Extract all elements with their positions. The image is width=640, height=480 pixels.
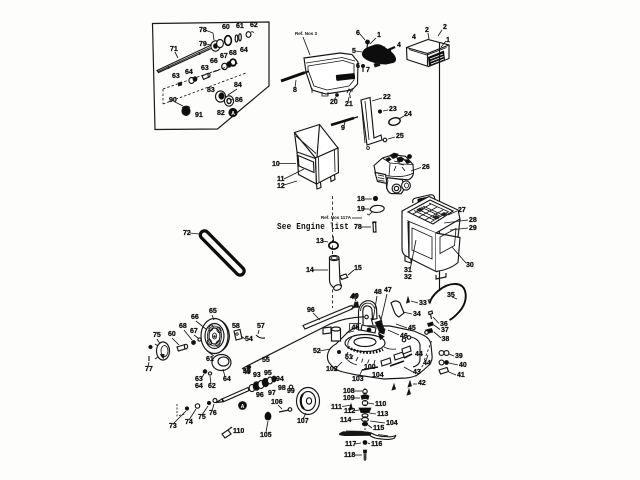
- svg-text:49: 49: [243, 369, 251, 376]
- svg-text:62: 62: [250, 22, 258, 29]
- svg-text:61: 61: [236, 23, 244, 30]
- svg-text:110: 110: [233, 428, 244, 435]
- svg-text:54: 54: [245, 336, 253, 343]
- svg-text:110: 110: [375, 401, 386, 408]
- svg-text:58: 58: [232, 323, 240, 330]
- svg-text:34: 34: [413, 311, 421, 318]
- svg-text:72: 72: [183, 230, 191, 237]
- svg-text:67: 67: [190, 328, 198, 335]
- svg-text:51: 51: [345, 354, 353, 361]
- svg-text:82: 82: [217, 110, 225, 117]
- svg-text:63: 63: [201, 65, 209, 72]
- svg-text:4: 4: [397, 42, 401, 49]
- svg-text:45: 45: [352, 325, 360, 332]
- svg-text:29: 29: [469, 225, 477, 232]
- svg-text:60: 60: [222, 24, 230, 31]
- svg-text:A: A: [241, 404, 245, 410]
- svg-text:Ref. Nos 117A: Ref. Nos 117A: [321, 215, 352, 220]
- svg-text:41: 41: [457, 372, 465, 379]
- svg-text:61: 61: [206, 356, 214, 363]
- svg-text:64: 64: [185, 69, 193, 76]
- svg-text:95: 95: [264, 370, 272, 377]
- svg-text:96: 96: [256, 392, 264, 399]
- svg-text:65: 65: [209, 308, 217, 315]
- svg-text:68: 68: [179, 323, 187, 330]
- svg-text:86: 86: [235, 97, 243, 104]
- svg-text:27: 27: [458, 207, 466, 214]
- svg-text:93: 93: [253, 372, 261, 379]
- svg-text:104: 104: [386, 420, 398, 427]
- svg-text:66: 66: [191, 314, 199, 321]
- svg-text:21: 21: [345, 101, 353, 108]
- svg-text:103: 103: [352, 376, 364, 383]
- svg-text:10: 10: [272, 161, 280, 168]
- svg-text:23: 23: [389, 106, 397, 113]
- svg-text:62: 62: [208, 383, 216, 390]
- svg-text:11: 11: [277, 176, 285, 183]
- svg-text:32: 32: [404, 274, 412, 281]
- svg-text:45: 45: [350, 294, 358, 301]
- svg-text:60: 60: [168, 331, 176, 338]
- svg-text:108: 108: [343, 388, 355, 395]
- svg-text:38: 38: [442, 336, 450, 343]
- svg-text:39: 39: [455, 353, 463, 360]
- svg-text:5: 5: [352, 48, 356, 55]
- svg-text:55: 55: [262, 357, 270, 364]
- svg-text:Ref. Nos 3: Ref. Nos 3: [295, 31, 318, 36]
- svg-text:12: 12: [277, 183, 285, 190]
- svg-text:26: 26: [422, 164, 430, 171]
- svg-text:91: 91: [195, 112, 203, 119]
- svg-text:118: 118: [344, 452, 355, 459]
- svg-text:2: 2: [443, 24, 447, 31]
- svg-text:7: 7: [366, 67, 370, 74]
- svg-text:115: 115: [373, 425, 384, 432]
- svg-text:19: 19: [357, 206, 365, 213]
- svg-text:112: 112: [344, 408, 355, 415]
- svg-text:64: 64: [240, 47, 248, 54]
- svg-text:104: 104: [372, 372, 384, 379]
- svg-text:77: 77: [145, 366, 153, 373]
- svg-text:100: 100: [364, 364, 376, 371]
- svg-text:15: 15: [354, 265, 362, 272]
- svg-text:71: 71: [170, 46, 178, 53]
- svg-text:106: 106: [271, 399, 283, 406]
- svg-text:42: 42: [418, 380, 426, 387]
- svg-text:67: 67: [220, 53, 228, 60]
- svg-text:48: 48: [374, 289, 382, 296]
- svg-text:52: 52: [313, 348, 321, 355]
- svg-text:107: 107: [297, 418, 309, 425]
- svg-text:A: A: [231, 111, 235, 117]
- svg-text:33: 33: [419, 300, 427, 307]
- svg-text:64: 64: [195, 383, 203, 390]
- svg-text:64: 64: [223, 376, 231, 383]
- svg-text:75: 75: [198, 414, 206, 421]
- svg-text:28: 28: [469, 217, 477, 224]
- svg-text:79: 79: [199, 41, 207, 48]
- svg-text:46: 46: [400, 333, 408, 340]
- svg-text:68: 68: [229, 50, 237, 57]
- svg-text:6: 6: [356, 30, 360, 37]
- svg-text:57: 57: [257, 323, 265, 330]
- svg-text:37: 37: [441, 327, 449, 334]
- svg-text:8: 8: [293, 87, 297, 94]
- svg-text:45: 45: [408, 325, 416, 332]
- svg-text:1: 1: [446, 37, 450, 44]
- svg-text:75: 75: [153, 332, 161, 339]
- svg-text:24: 24: [404, 111, 412, 118]
- svg-text:98: 98: [278, 385, 286, 392]
- svg-text:6: 6: [356, 63, 360, 70]
- svg-text:90: 90: [169, 97, 177, 104]
- svg-text:20: 20: [330, 99, 338, 106]
- svg-text:1: 1: [377, 32, 381, 39]
- svg-text:111: 111: [331, 404, 342, 411]
- svg-text:See Engine list: See Engine list: [277, 222, 349, 232]
- svg-text:30: 30: [466, 262, 474, 269]
- svg-text:18: 18: [357, 196, 365, 203]
- svg-text:116: 116: [371, 441, 382, 448]
- svg-text:25: 25: [396, 133, 404, 140]
- svg-text:40: 40: [459, 362, 467, 369]
- svg-text:94: 94: [276, 376, 284, 383]
- svg-text:114: 114: [340, 417, 351, 424]
- svg-text:14: 14: [306, 267, 314, 274]
- svg-text:102: 102: [326, 366, 338, 373]
- svg-text:22: 22: [383, 94, 391, 101]
- svg-text:113: 113: [377, 411, 388, 418]
- svg-text:76: 76: [209, 410, 217, 417]
- svg-text:117: 117: [345, 441, 356, 448]
- svg-text:66: 66: [210, 58, 218, 65]
- svg-text:63: 63: [172, 73, 180, 80]
- svg-text:44: 44: [415, 351, 423, 358]
- svg-text:97: 97: [268, 390, 276, 397]
- svg-text:83: 83: [207, 87, 215, 94]
- svg-text:47: 47: [384, 287, 392, 294]
- svg-text:13: 13: [316, 238, 324, 245]
- svg-text:109: 109: [343, 395, 355, 402]
- svg-text:84: 84: [234, 82, 242, 89]
- svg-text:73: 73: [169, 423, 177, 430]
- svg-text:4: 4: [412, 34, 416, 41]
- svg-text:96: 96: [307, 307, 315, 314]
- svg-text:105: 105: [260, 432, 272, 439]
- svg-text:78: 78: [354, 224, 362, 231]
- svg-text:74: 74: [185, 419, 193, 426]
- svg-text:44: 44: [423, 360, 431, 367]
